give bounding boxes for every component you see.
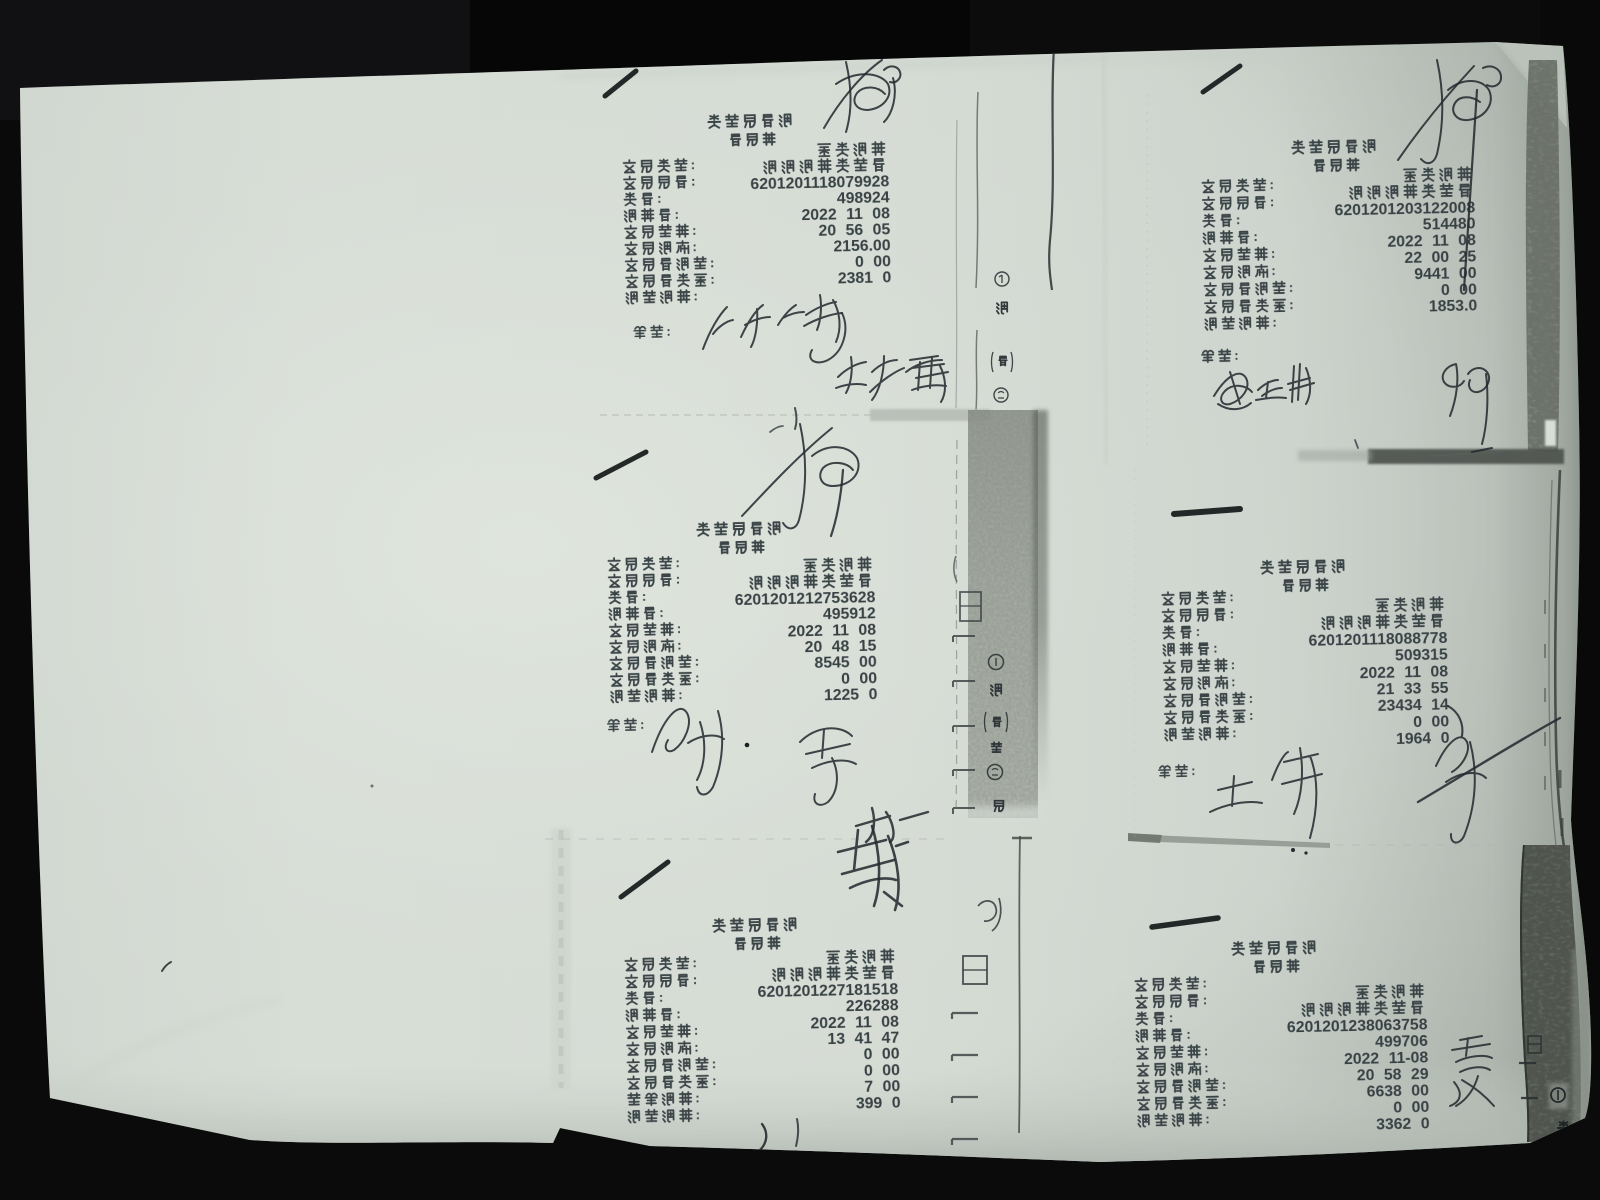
svg-text:0 00: 0 00	[864, 1046, 900, 1064]
svg-text:0 00: 0 00	[855, 253, 891, 271]
svg-text:21 33 55: 21 33 55	[1377, 680, 1449, 699]
svg-text:9441 00: 9441 00	[1414, 265, 1477, 283]
svg-text:7 00: 7 00	[864, 1078, 900, 1096]
svg-text:20 58 29: 20 58 29	[1357, 1066, 1429, 1085]
svg-text:0 00: 0 00	[864, 1062, 900, 1080]
svg-text:1964 0: 1964 0	[1396, 730, 1450, 748]
svg-text:0 00: 0 00	[1441, 281, 1477, 299]
svg-text:0 00: 0 00	[841, 670, 877, 688]
svg-text:509315: 509315	[1395, 647, 1448, 665]
svg-text:399 0: 399 0	[856, 1094, 901, 1112]
svg-text:0 00: 0 00	[1413, 713, 1449, 731]
svg-text:1225 0: 1225 0	[824, 686, 878, 704]
svg-text:2381 0: 2381 0	[838, 269, 892, 287]
svg-text:3362 0: 3362 0	[1376, 1115, 1430, 1133]
svg-text:6638 00: 6638 00	[1367, 1082, 1430, 1100]
svg-text:0 00: 0 00	[1393, 1099, 1429, 1117]
svg-text:23434 14: 23434 14	[1378, 697, 1450, 715]
svg-text:499706: 499706	[1375, 1033, 1428, 1051]
svg-text:1853.0: 1853.0	[1429, 298, 1478, 316]
